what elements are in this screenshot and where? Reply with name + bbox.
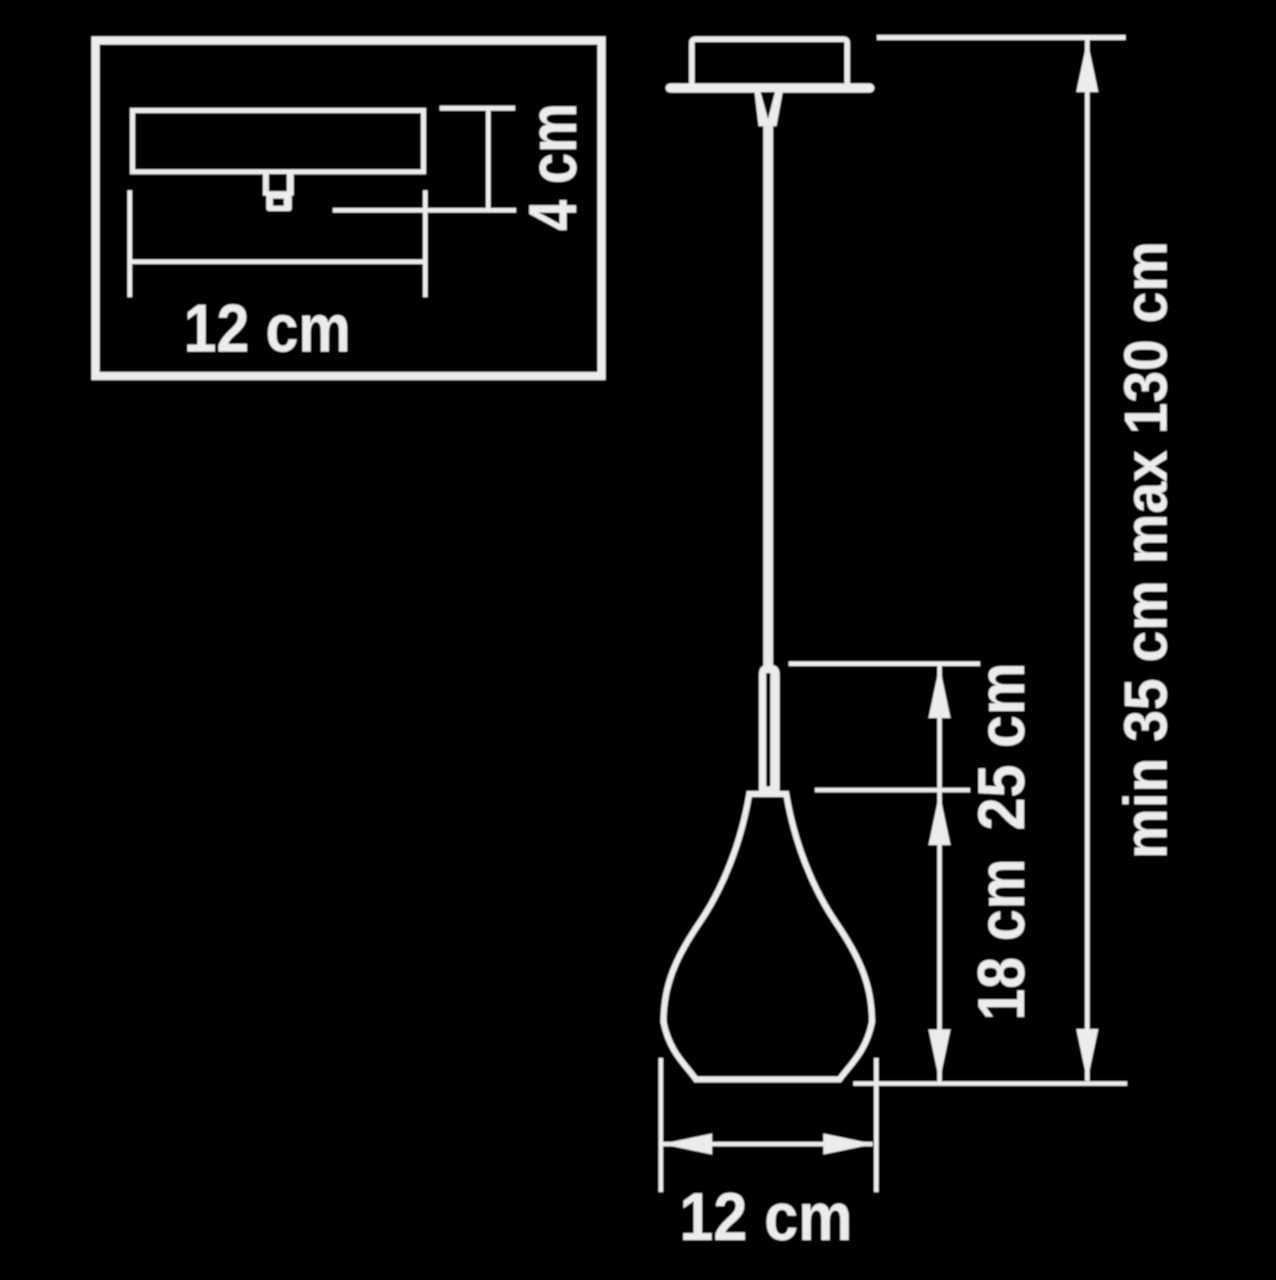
svg-text:12 cm: 12 cm [679, 1179, 852, 1255]
svg-text:12 cm: 12 cm [184, 290, 351, 366]
svg-text:18 cm: 18 cm [964, 859, 1038, 1021]
svg-text:min 35 cm max 130 cm: min 35 cm max 130 cm [1113, 241, 1180, 859]
svg-text:4 cm: 4 cm [515, 103, 591, 231]
svg-text:25 cm: 25 cm [964, 663, 1038, 831]
